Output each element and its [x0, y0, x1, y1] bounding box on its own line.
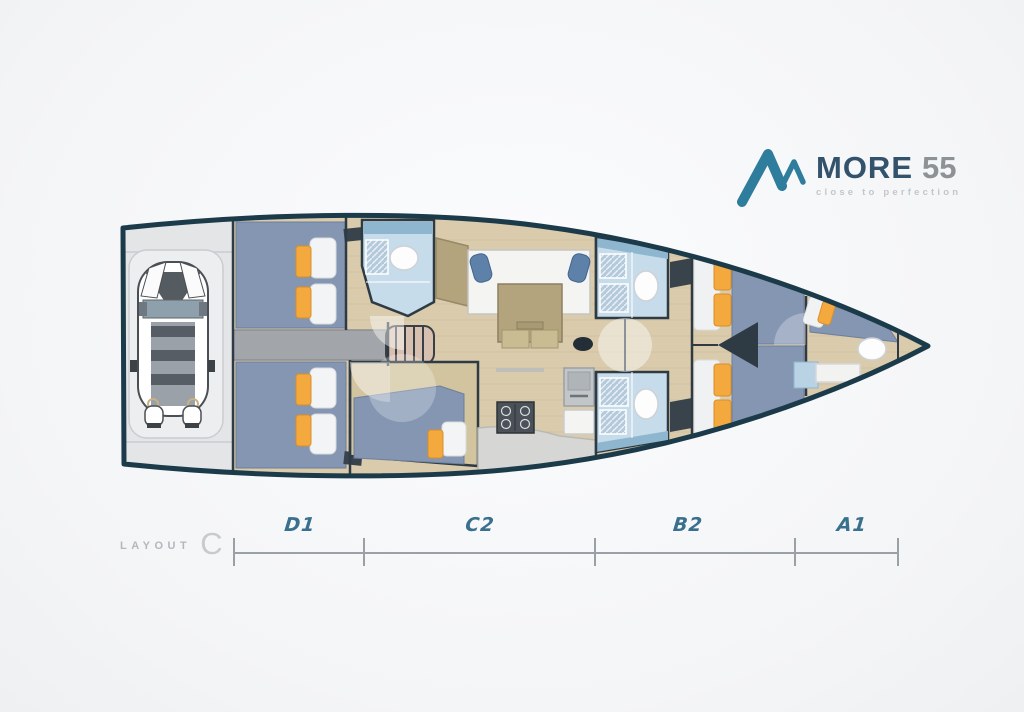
mast [573, 337, 593, 351]
layout-variant: C [200, 526, 222, 562]
section-label-c2: C2 [457, 514, 503, 536]
layout-label: LAYOUT C [120, 530, 223, 562]
aft-head [362, 220, 434, 316]
locker-port [670, 258, 692, 288]
dimension-tick [794, 538, 796, 566]
layout-word: LAYOUT [120, 540, 191, 552]
dimension-tick [897, 538, 899, 566]
galley-sink [564, 368, 594, 406]
section-label-d1: D1 [277, 514, 323, 536]
dimension-tick [363, 538, 365, 566]
deck-plan [0, 0, 1024, 712]
aft-cabin-starboard [236, 362, 363, 468]
starboard-head [596, 372, 668, 452]
dimension-tick [594, 538, 596, 566]
engine-compartment [233, 330, 388, 360]
dimension-line [233, 552, 898, 554]
galley-fridge [564, 410, 594, 434]
section-label-b2: B2 [665, 514, 711, 536]
section-label-a1: A1 [829, 514, 875, 536]
dimension-tick [233, 538, 235, 566]
locker-starboard [670, 398, 692, 432]
galley-stove [497, 402, 534, 433]
page: MORE 55 close to perfection [0, 0, 1024, 712]
dinghy [130, 262, 215, 428]
aft-cabin-port [236, 222, 363, 328]
